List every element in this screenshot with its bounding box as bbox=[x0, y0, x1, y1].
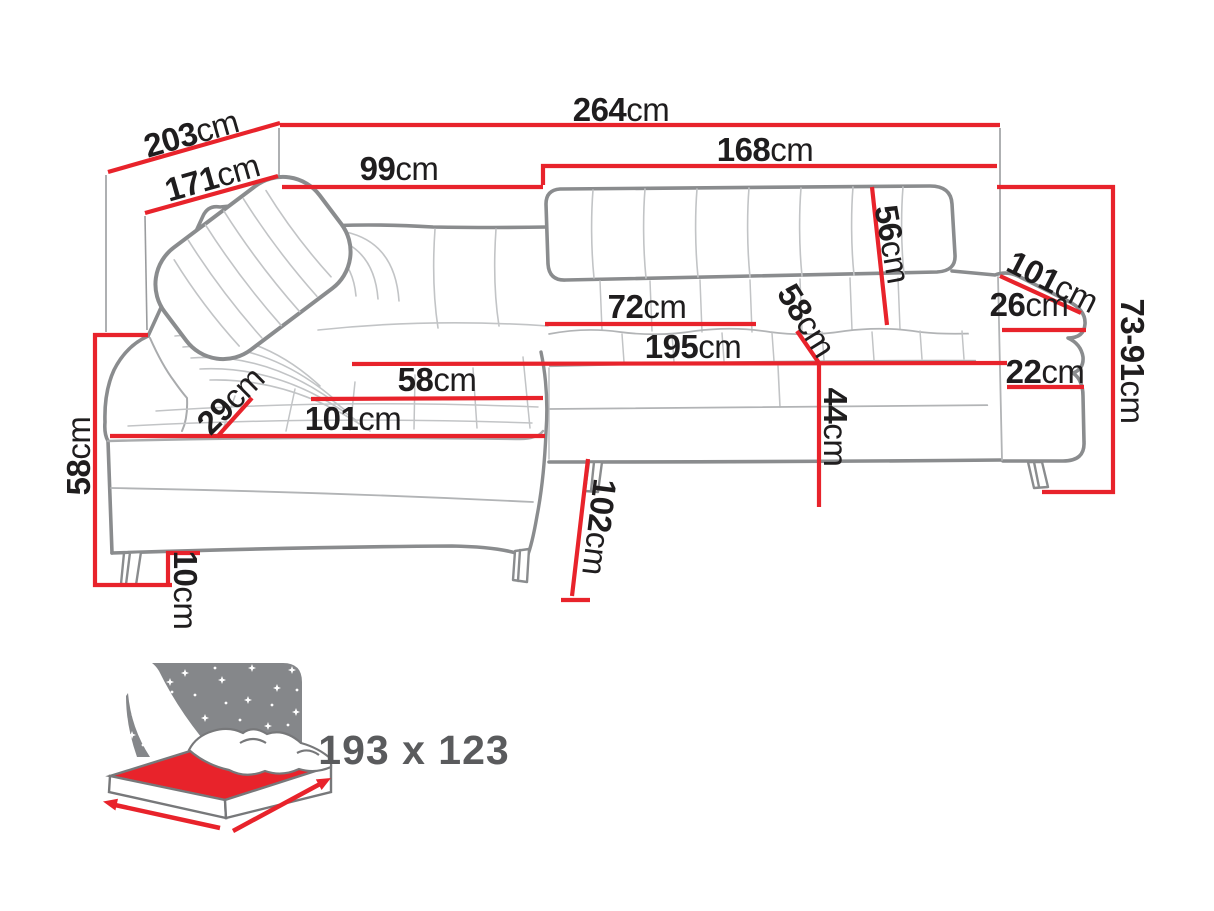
label-73-91: 73-91cm bbox=[1115, 299, 1152, 424]
front-face-row bbox=[550, 405, 1003, 409]
chaise-right-leg bbox=[513, 549, 529, 582]
right-leg bbox=[1028, 462, 1048, 488]
sofa-dimensions-diagram: 203cm 264cm 171cm 99cm 168cm 56cm 101cm … bbox=[0, 0, 1214, 911]
label-10: 10cm bbox=[168, 551, 205, 630]
left-armrest-ridge bbox=[150, 338, 187, 431]
chaise-front-seam bbox=[111, 488, 533, 502]
label-58-seat: 58cm bbox=[398, 361, 477, 398]
label-58-height: 58cm bbox=[60, 417, 97, 496]
label-195: 195cm bbox=[645, 328, 742, 365]
base-bottom-edge bbox=[549, 460, 1003, 462]
sleeping-size-label: 193 x 123 bbox=[318, 727, 509, 773]
diagram-canvas: 203cm 264cm 171cm 99cm 168cm 56cm 101cm … bbox=[0, 0, 1214, 911]
label-58-diagonal: 58cm bbox=[770, 277, 843, 363]
left-armrest-outline bbox=[105, 336, 148, 553]
label-26: 26cm bbox=[990, 286, 1069, 323]
label-168: 168cm bbox=[717, 131, 814, 168]
label-101-chaise: 101cm bbox=[305, 400, 402, 437]
label-44: 44cm bbox=[818, 388, 855, 467]
front-face-seams bbox=[549, 366, 780, 459]
label-72: 72cm bbox=[608, 288, 687, 325]
label-22: 22cm bbox=[1006, 353, 1085, 390]
headboard-sliver bbox=[126, 693, 150, 757]
label-29: 29cm bbox=[189, 359, 271, 441]
label-99: 99cm bbox=[360, 150, 439, 187]
front-left-leg bbox=[121, 552, 141, 585]
dim-line-168 bbox=[543, 166, 997, 185]
sleeping-function-bed-icon: 193 x 123 bbox=[103, 663, 510, 831]
label-264: 264cm bbox=[573, 91, 670, 128]
seat-quilt-row bbox=[549, 329, 1003, 335]
chaise-right-edge bbox=[527, 352, 547, 557]
